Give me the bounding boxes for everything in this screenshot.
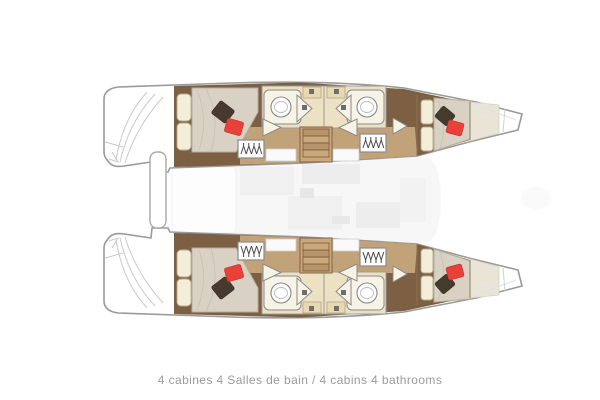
saloon-furniture bbox=[240, 167, 294, 195]
saloon-furniture bbox=[356, 202, 400, 228]
saloon-bridgedeck bbox=[234, 157, 441, 243]
saloon-furniture bbox=[288, 196, 342, 230]
floorplan-canvas: 4 cabines 4 Salles de bain / 4 cabins 4 … bbox=[0, 0, 600, 400]
stern-gangway bbox=[150, 152, 166, 228]
saloon-furniture bbox=[300, 188, 314, 198]
saloon-furniture bbox=[332, 216, 350, 224]
saloon-furniture bbox=[400, 178, 426, 222]
foredeck-mark bbox=[521, 187, 551, 209]
saloon-furniture bbox=[302, 164, 360, 184]
aft-cockpit bbox=[172, 167, 236, 233]
hull-port bbox=[104, 82, 522, 172]
catamaran-floorplan bbox=[0, 0, 600, 400]
caption: 4 cabines 4 Salles de bain / 4 cabins 4 … bbox=[0, 373, 600, 387]
hull-starboard bbox=[104, 228, 522, 318]
